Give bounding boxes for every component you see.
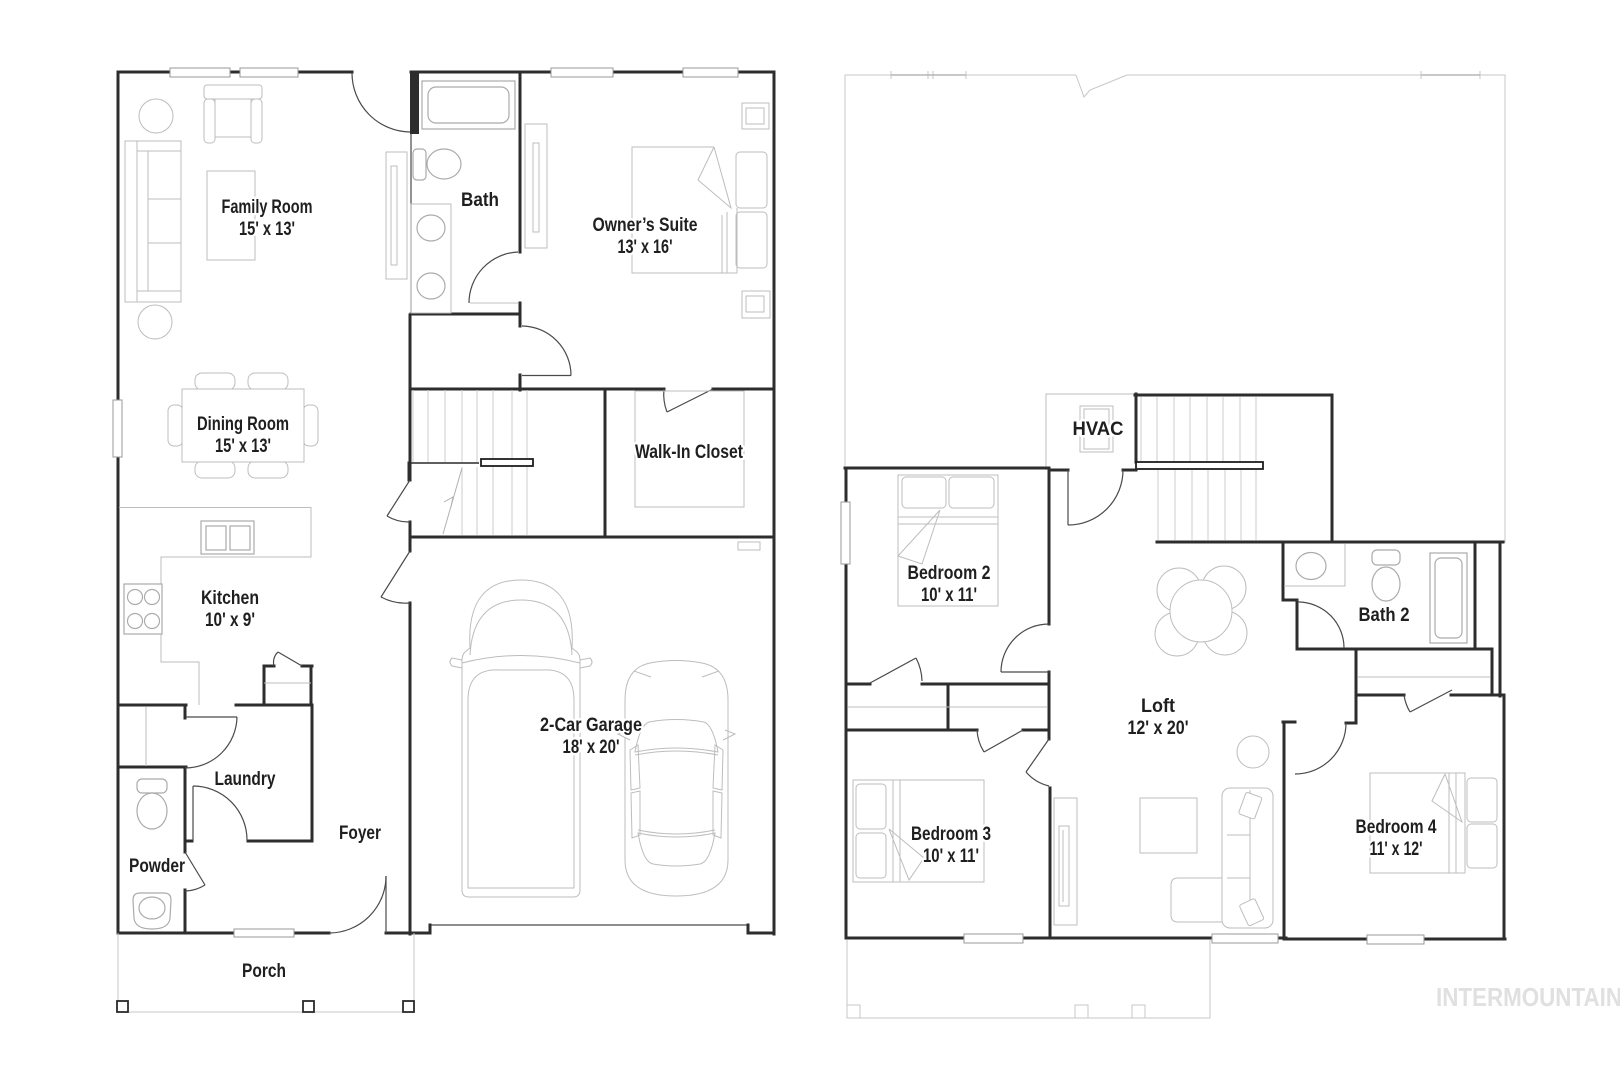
svg-text:Kitchen: Kitchen [201, 588, 259, 609]
svg-text:Bedroom 3: Bedroom 3 [911, 824, 991, 845]
svg-text:15' x 13': 15' x 13' [215, 436, 271, 457]
svg-text:Porch: Porch [242, 961, 286, 982]
svg-text:Bedroom 4: Bedroom 4 [1356, 817, 1437, 838]
svg-text:Owner’s Suite: Owner’s Suite [593, 215, 698, 236]
svg-text:18' x 20': 18' x 20' [563, 737, 620, 758]
svg-text:Bath: Bath [461, 190, 499, 211]
svg-text:10' x 11': 10' x 11' [921, 585, 977, 606]
svg-text:INTERMOUNTAIN: INTERMOUNTAIN [1436, 982, 1620, 1012]
svg-text:10' x 11': 10' x 11' [923, 846, 979, 867]
svg-text:12' x 20': 12' x 20' [1128, 718, 1189, 739]
svg-text:13' x 16': 13' x 16' [618, 237, 673, 258]
svg-text:Laundry: Laundry [215, 769, 276, 790]
svg-text:2-Car Garage: 2-Car Garage [540, 715, 642, 736]
svg-text:Foyer: Foyer [339, 823, 381, 844]
svg-text:11' x 12': 11' x 12' [1370, 839, 1423, 860]
svg-text:Family Room: Family Room [222, 197, 313, 218]
svg-text:10' x 9': 10' x 9' [205, 610, 255, 631]
svg-text:15' x 13': 15' x 13' [239, 219, 295, 240]
svg-text:Powder: Powder [129, 856, 185, 877]
svg-text:HVAC: HVAC [1073, 419, 1124, 440]
svg-text:Bath 2: Bath 2 [1359, 605, 1410, 626]
svg-text:Walk-In Closet: Walk-In Closet [635, 442, 744, 463]
svg-text:Bedroom 2: Bedroom 2 [908, 563, 991, 584]
svg-text:Loft: Loft [1141, 696, 1176, 717]
svg-text:Dining Room: Dining Room [197, 414, 289, 435]
